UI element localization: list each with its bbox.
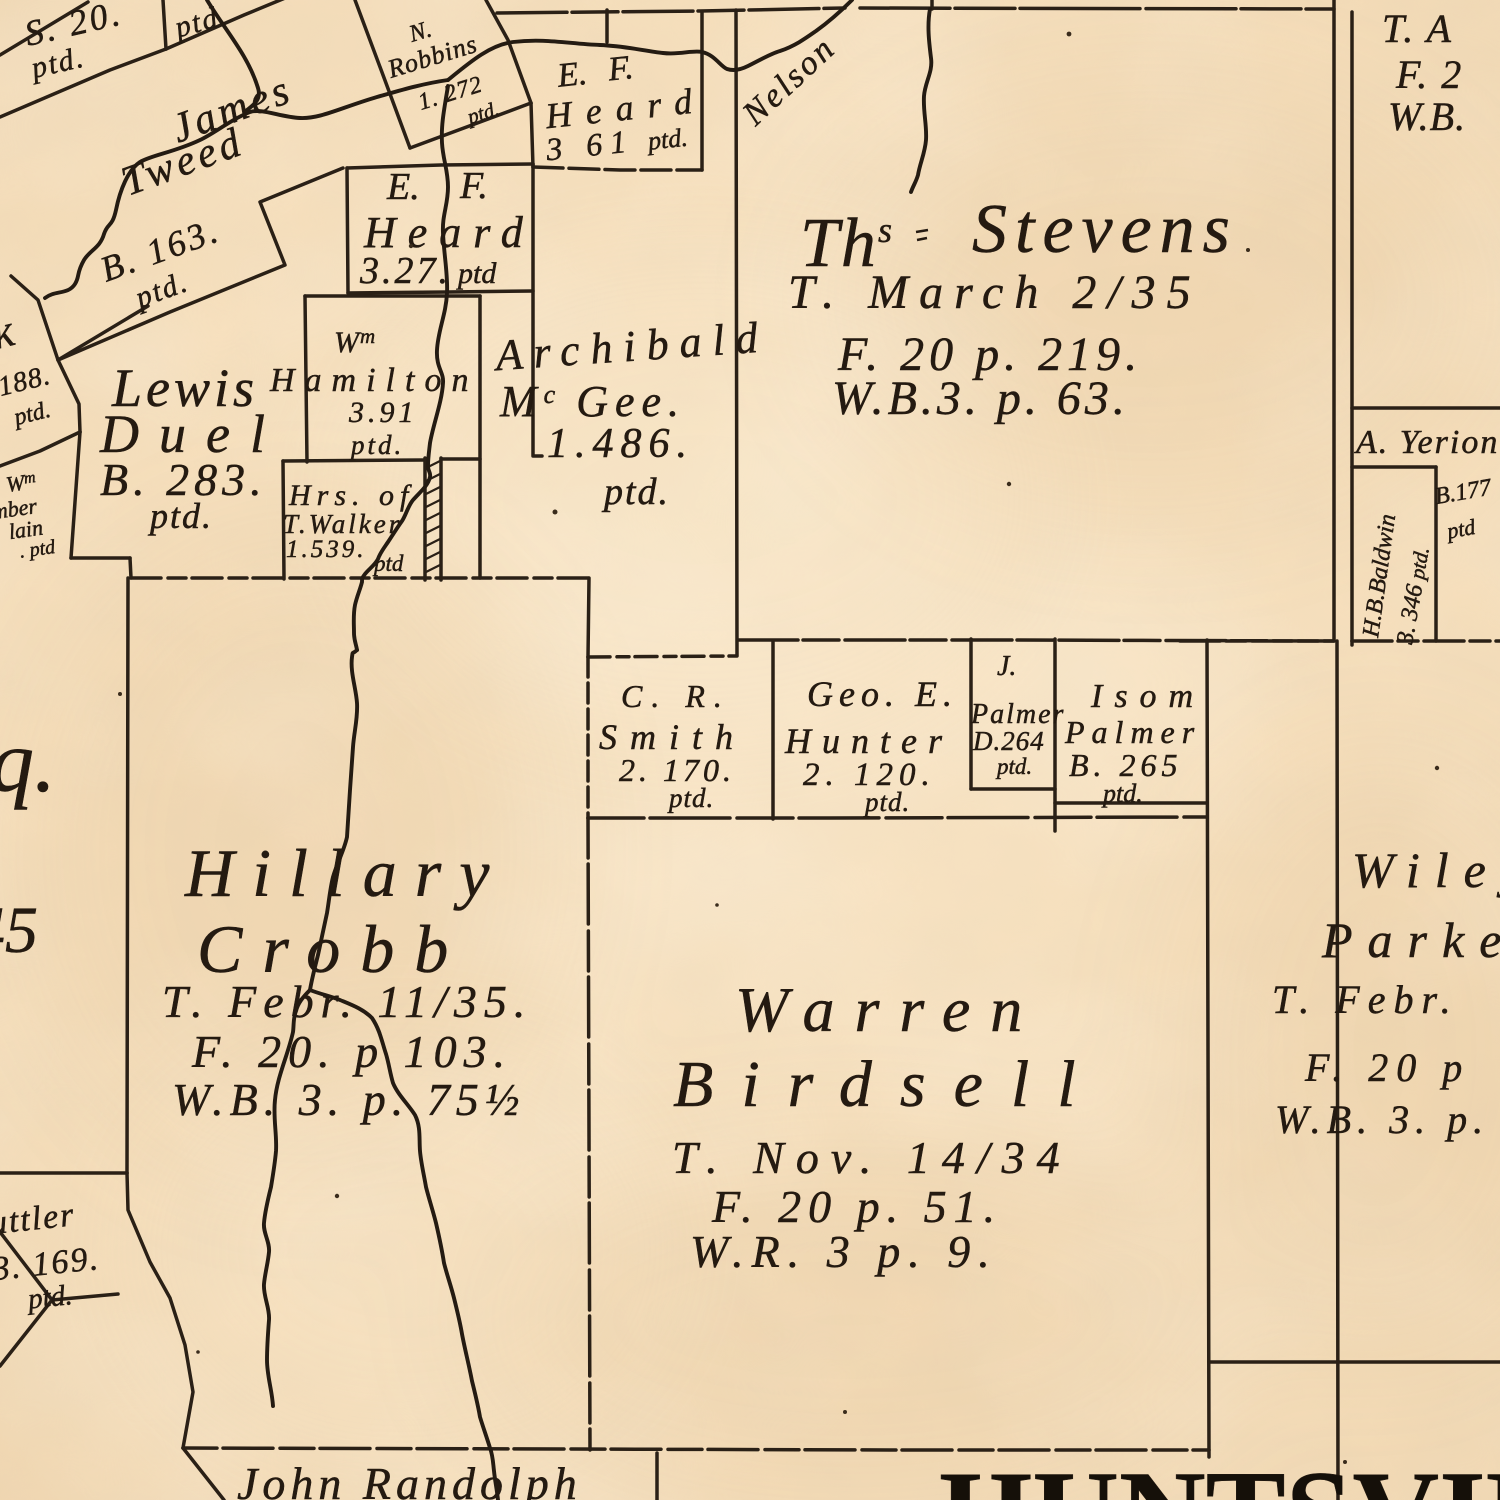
svg-text:A. Yerion: A. Yerion (1354, 424, 1499, 461)
svg-text:T. Nov. 14/34: T. Nov. 14/34 (672, 1132, 1072, 1183)
svg-text:ptd.: ptd. (644, 123, 689, 156)
svg-text:W.B.: W.B. (1388, 94, 1466, 139)
svg-text:Hamilton: Hamilton (269, 362, 478, 399)
svg-text:W.B.3. p. 63.: W.B.3. p. 63. (832, 372, 1129, 425)
svg-text:3.27.: 3.27. (359, 250, 451, 292)
svg-text:T. Febr. 11/35.: T. Febr. 11/35. (162, 976, 532, 1027)
svg-text:F. 20. p 103.: F. 20. p 103. (191, 1026, 512, 1077)
svg-text:B. 265: B. 265 (1069, 747, 1183, 783)
svg-text:1.486.: 1.486. (547, 421, 694, 467)
svg-text:F. 20 p: F. 20 p (1304, 1045, 1470, 1090)
svg-text:q.: q. (0, 714, 56, 811)
svg-text:Geo. E.: Geo. E. (807, 674, 958, 714)
svg-text:ptd.: ptd. (1101, 779, 1143, 808)
svg-text:Isom: Isom (1090, 678, 1205, 715)
svg-text:W.R. 3 p. 9.: W.R. 3 p. 9. (690, 1226, 998, 1277)
svg-text:F. 20 p. 51.: F. 20 p. 51. (711, 1181, 1002, 1232)
svg-text:Hillary: Hillary (184, 835, 507, 911)
svg-text:John Randolph: John Randolph (237, 1458, 582, 1500)
svg-text:W.B. 3. p. 75½: W.B. 3. p. 75½ (172, 1074, 525, 1125)
svg-text:ptd.: ptd. (349, 430, 404, 460)
svg-text:T. A: T. A (1382, 6, 1453, 51)
svg-text:J.: J. (997, 651, 1016, 682)
svg-text:Smith: Smith (599, 717, 746, 757)
svg-text:D.264: D.264 (972, 726, 1045, 756)
svg-text:F. 2: F. 2 (1395, 52, 1463, 97)
svg-text:McGee.: McGee. (499, 377, 686, 426)
svg-text:E.: E. (555, 55, 589, 95)
svg-text:F.: F. (605, 49, 635, 89)
svg-text:Wiley: Wiley (1352, 842, 1500, 898)
svg-text:ptd.: ptd. (601, 471, 670, 513)
svg-text:ptd: ptd (372, 551, 404, 576)
svg-text:ptd: ptd (1443, 514, 1478, 544)
svg-text:T. Febr.: T. Febr. (1272, 977, 1459, 1022)
svg-text:ptd.: ptd. (24, 1279, 73, 1316)
svg-text:ptd: ptd (456, 257, 497, 290)
svg-text:W.B. 3. p.: W.B. 3. p. (1275, 1097, 1489, 1142)
svg-text:Hunter: Hunter (784, 721, 953, 761)
svg-text:ptd.: ptd. (995, 754, 1032, 779)
svg-text:3.91: 3.91 (348, 396, 418, 429)
svg-text:Stevens: Stevens (972, 191, 1238, 268)
svg-text:C. R.: C. R. (621, 678, 731, 714)
svg-text:1.539.: 1.539. (286, 536, 367, 563)
svg-text:ptd.: ptd. (863, 787, 910, 817)
svg-text:Parker: Parker (1321, 912, 1500, 968)
svg-text:T.Walker: T.Walker (283, 509, 402, 539)
svg-text:T. March 2/35: T. March 2/35 (788, 266, 1202, 319)
svg-text:Palmer: Palmer (1064, 714, 1201, 750)
svg-text:ptd.: ptd. (667, 783, 714, 813)
svg-text:HUNTSVIL: HUNTSVIL (939, 1446, 1500, 1500)
svg-text:ptd.: ptd. (147, 496, 213, 536)
svg-text:E.: E. (386, 166, 420, 208)
svg-text:Birdsell: Birdsell (673, 1048, 1104, 1121)
svg-text:Hrs. of: Hrs. of (288, 479, 414, 512)
svg-text:Warren: Warren (735, 974, 1042, 1045)
svg-text:45: 45 (0, 894, 38, 967)
svg-text:F.: F. (459, 165, 488, 207)
